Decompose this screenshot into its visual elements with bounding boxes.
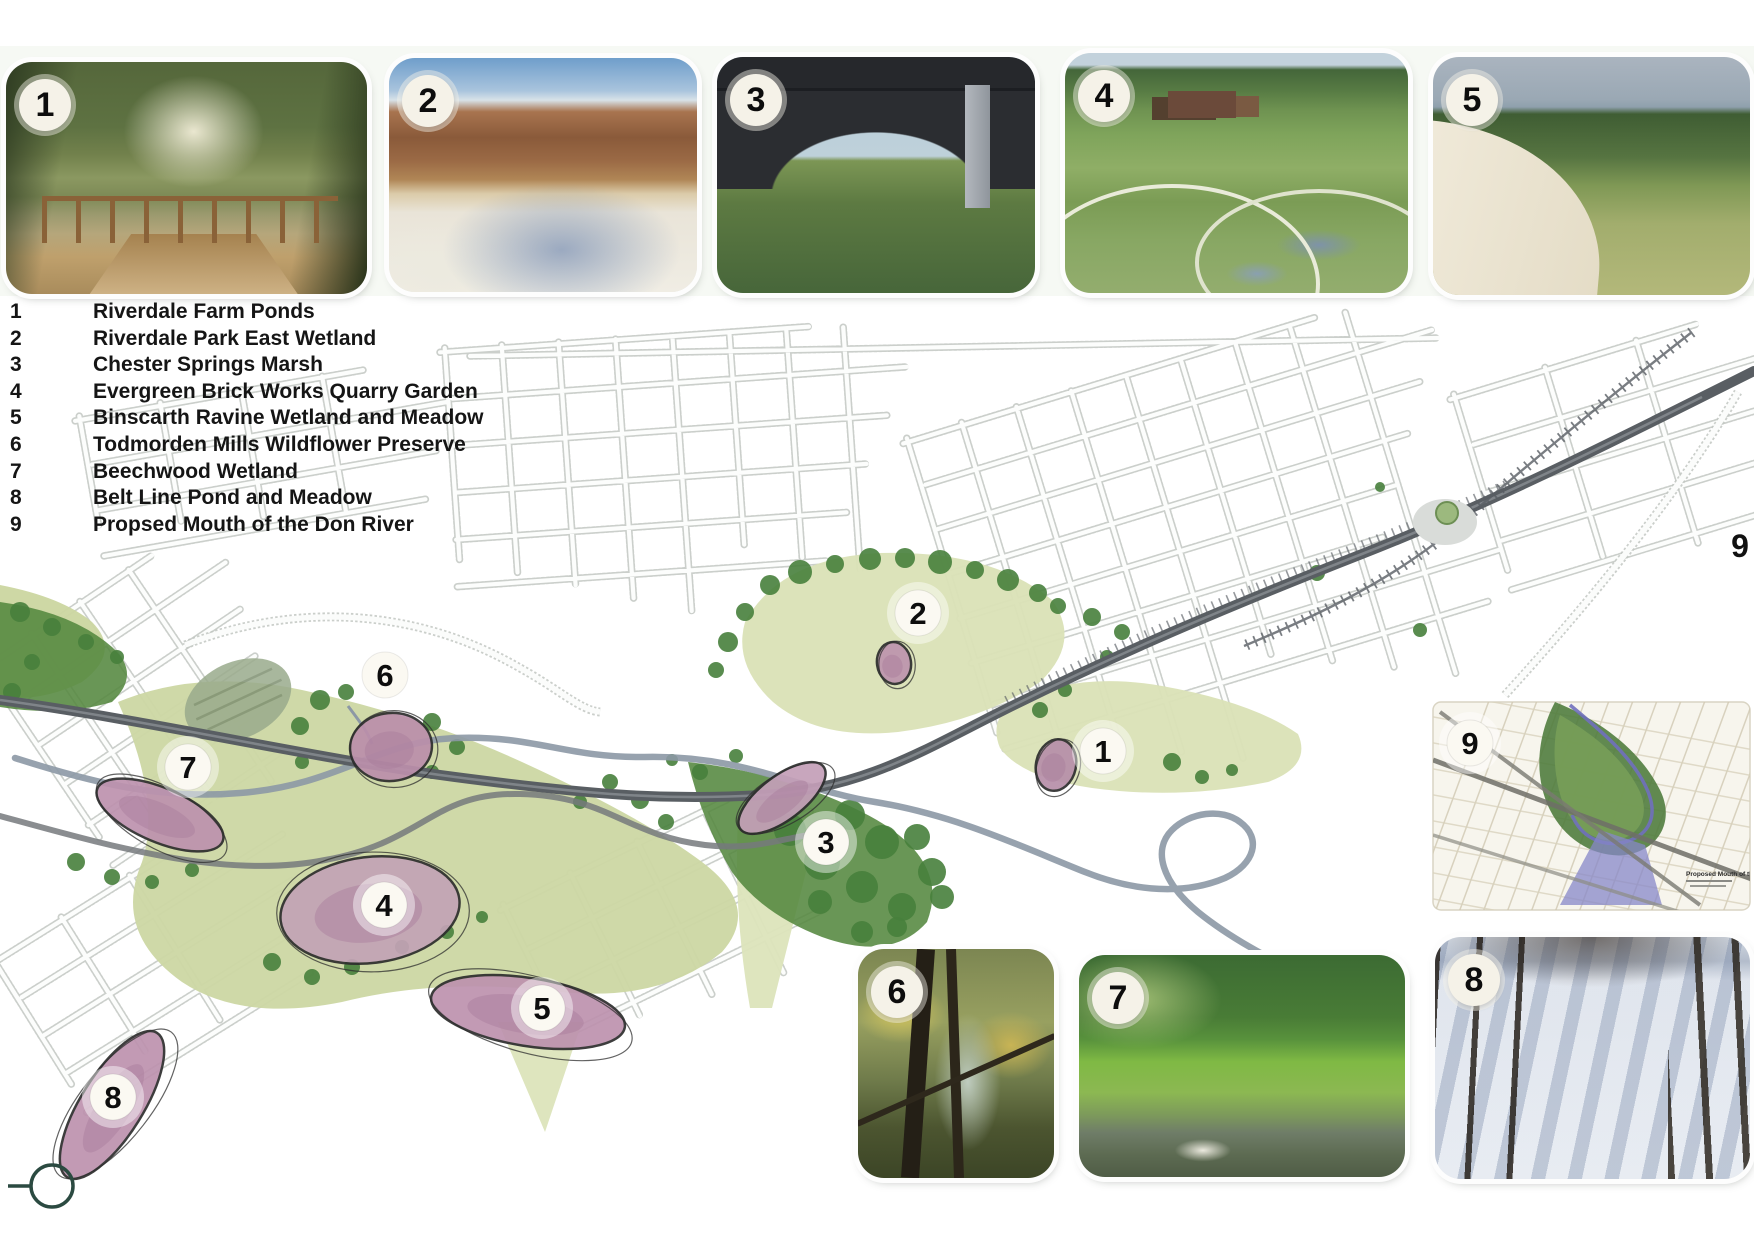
legend-item-number: 5 [10,405,93,432]
legend-item-number: 6 [10,432,93,459]
photo-2: 2 [389,58,697,292]
photo-3: 3 [717,57,1035,293]
photo-1-badge: 1 [19,79,71,131]
legend-item-label: Beechwood Wetland [93,459,298,486]
legend-item-2: 2Riverdale Park East Wetland [10,326,590,353]
legend-item-number: 2 [10,326,93,353]
legend-item-number: 8 [10,485,93,512]
legend-item-1: 1Riverdale Farm Ponds [10,299,590,326]
legend-item-7: 7Beechwood Wetland [10,459,590,486]
photo-4-badge: 4 [1078,70,1130,122]
photo-7-badge: 7 [1092,972,1144,1024]
photo-4: 4 [1065,53,1408,293]
legend-item-label: Belt Line Pond and Meadow [93,485,372,512]
photo-8-badge: 8 [1448,954,1500,1006]
legend-item-9: 9Propsed Mouth of the Don River [10,512,590,539]
legend-item-label: Riverdale Park East Wetland [93,326,376,353]
legend-item-label: Propsed Mouth of the Don River [93,512,414,539]
map-marker-1-badge: 1 [1072,720,1134,782]
interchange [1413,499,1477,545]
legend-item-number: 7 [10,459,93,486]
inset-caption: Proposed Mouth of the Don River [1686,871,1754,878]
map-marker-6-badge: 6 [354,644,416,706]
photo-2-badge: 2 [402,75,454,127]
svg-text:9: 9 [1461,726,1478,761]
legend: 1Riverdale Farm Ponds2Riverdale Park Eas… [10,299,590,538]
legend-item-4: 4Evergreen Brick Works Quarry Garden [10,379,590,406]
legend-item-number: 3 [10,352,93,379]
svg-text:2: 2 [909,596,926,631]
map-marker-5-badge: 5 [511,977,573,1039]
legend-item-8: 8Belt Line Pond and Meadow [10,485,590,512]
legend-item-label: Evergreen Brick Works Quarry Garden [93,379,478,406]
map-marker-2-badge: 2 [887,582,949,644]
legend-item-number: 1 [10,299,93,326]
photo-5: 5 [1433,57,1750,295]
svg-text:1: 1 [1094,734,1111,769]
legend-item-label: Riverdale Farm Ponds [93,299,315,326]
legend-item-5: 5Binscarth Ravine Wetland and Meadow [10,405,590,432]
map-marker-7-badge: 7 [157,736,219,798]
legend-item-label: Binscarth Ravine Wetland and Meadow [93,405,484,432]
svg-text:8: 8 [104,1080,121,1115]
legend-item-number: 4 [10,379,93,406]
map-marker-9-edge-label: 9 [1731,528,1749,564]
photo-1: 1 [6,62,367,294]
svg-text:3: 3 [817,825,834,860]
legend-item-number: 9 [10,512,93,539]
svg-text:7: 7 [179,750,196,785]
photo-6-badge: 6 [871,966,923,1018]
map-marker-8-badge: 8 [82,1066,144,1128]
poster: Proposed Mouth of the Don River 12345678… [0,0,1754,1240]
map-marker-9-badge: 9 [1439,712,1501,774]
photo-7: 7 [1079,955,1405,1177]
map-marker-4-badge: 4 [353,874,415,936]
map-marker-3-badge: 3 [795,811,857,873]
legend-item-3: 3Chester Springs Marsh [10,352,590,379]
legend-item-label: Todmorden Mills Wildflower Preserve [93,432,466,459]
svg-text:5: 5 [533,991,550,1026]
photo-8: 8 [1435,937,1750,1179]
legend-item-6: 6Todmorden Mills Wildflower Preserve [10,432,590,459]
svg-text:6: 6 [376,658,393,693]
svg-text:4: 4 [375,888,393,923]
photo-5-badge: 5 [1446,74,1498,126]
photo-6: 6 [858,949,1054,1178]
photo-3-badge: 3 [730,74,782,126]
legend-item-label: Chester Springs Marsh [93,352,323,379]
